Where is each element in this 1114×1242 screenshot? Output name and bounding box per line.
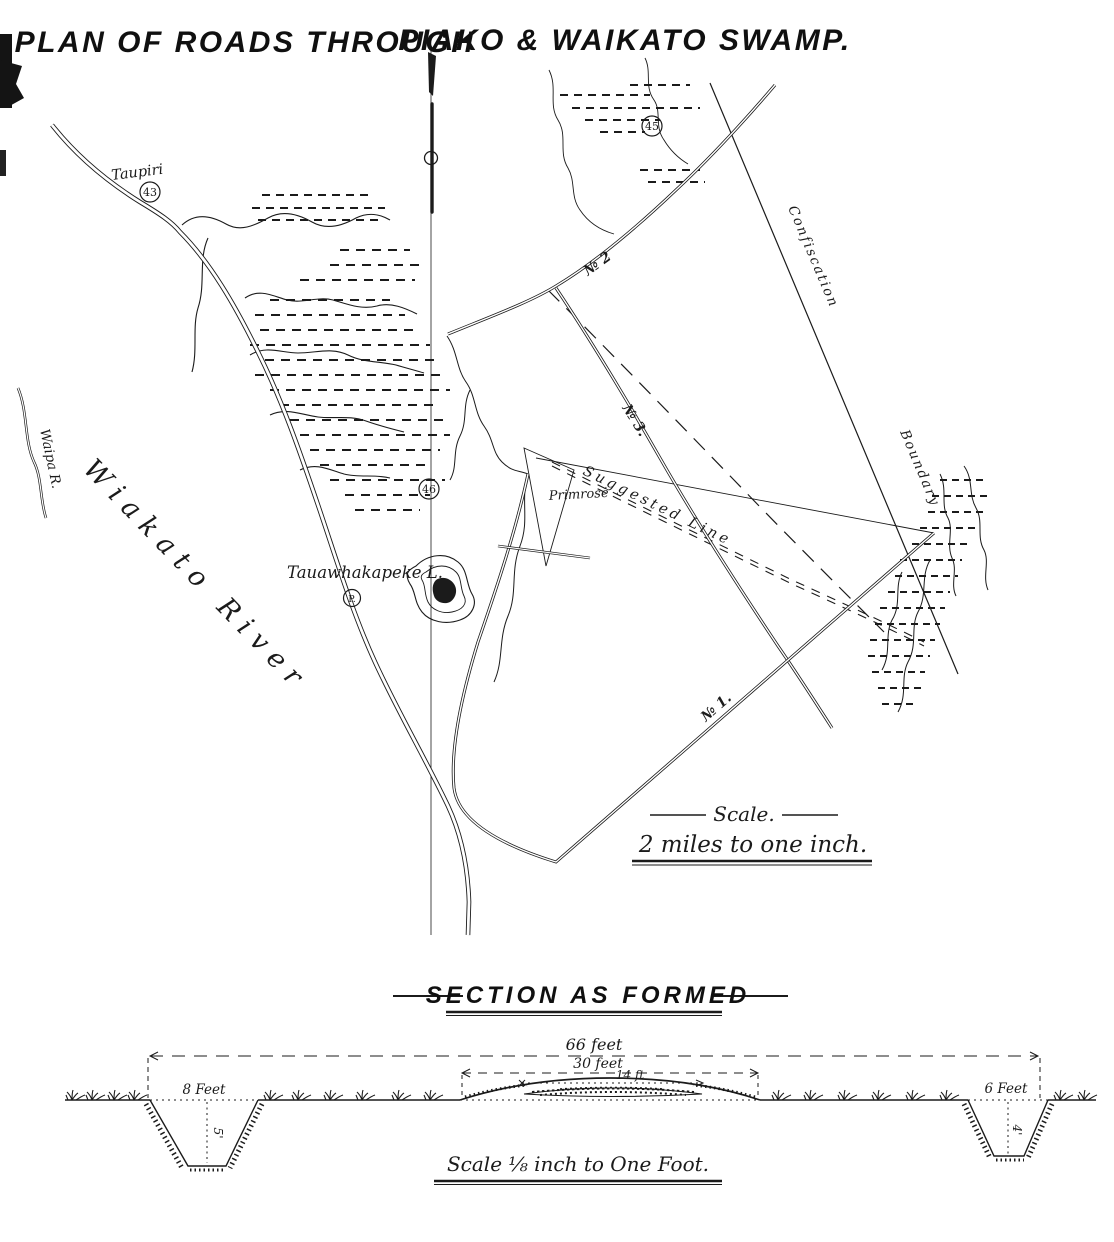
road-no2-label: № 2 <box>580 249 615 280</box>
confiscation-boundary-line <box>710 83 958 674</box>
map-scale-text: 2 miles to one inch. <box>638 832 867 858</box>
confiscation-label: Confiscation <box>784 203 842 310</box>
road-no3-line <box>556 288 832 728</box>
river-label: Wiakato River <box>77 453 315 698</box>
north-streams <box>549 58 688 234</box>
waikato-river <box>52 125 469 935</box>
taupiri-label: Taupiri <box>111 162 165 184</box>
junction-stream <box>447 336 528 682</box>
dim-left-ditch-width: 8 Feet <box>183 1082 226 1098</box>
map-scale-heading: Scale. <box>713 802 774 826</box>
main-swamp-hatching <box>250 250 450 510</box>
map-scale-block: Scale. 2 miles to one inch. <box>632 802 872 865</box>
north-swamp-hatching <box>560 85 705 182</box>
suggested-line-label: Suggested Line <box>580 463 734 549</box>
section-heading-block: SECTION AS FORMED <box>393 982 788 1016</box>
circle-43-label: 43 <box>143 186 157 199</box>
east-swamp-hatching <box>868 480 990 704</box>
dim-total-width: 66 feet <box>566 1035 623 1054</box>
circle-46-label: 46 <box>422 483 436 496</box>
road-no3-label: № 3. <box>618 401 650 440</box>
dim-right-ditch-width: 6 Feet <box>985 1081 1028 1097</box>
dim-metal-width: 14 ft <box>616 1068 645 1082</box>
lake-label: Tauawhakapeke L. <box>287 563 443 582</box>
circle-p: P. <box>344 590 361 607</box>
circle-45-label: 45 <box>645 120 659 133</box>
right-ditch: 6 Feet 4' <box>964 1081 1052 1160</box>
scanned-map-page: { "page": { "paper_color": "#ffffff", "i… <box>0 0 1114 1242</box>
left-ditch: 8 Feet 5' <box>146 1082 262 1170</box>
road-no1-label: № 1. <box>697 690 734 726</box>
dashed-survey-line <box>548 290 884 632</box>
cross-section: 66 feet 30 feet 14 ft <box>65 1035 1097 1185</box>
primrose-label: Primrose <box>547 486 609 504</box>
boundary-label: Boundary <box>896 426 943 509</box>
section-heading: SECTION AS FORMED <box>426 982 750 1009</box>
circle-p-label: P. <box>348 594 356 605</box>
dim-left-ditch-depth: 5' <box>211 1127 226 1138</box>
dim-right-ditch-depth: 4' <box>1010 1124 1024 1136</box>
road-embankment <box>460 1078 760 1100</box>
page-title-right: PIAKO & WAIKATO SWAMP. <box>398 24 851 57</box>
circle-43: 43 <box>140 182 160 202</box>
section-scale-block: Scale ⅛ inch to One Foot. <box>434 1152 722 1185</box>
plan-map-drawing: 43 45 46 P. Taupiri Wiakato River Waipa … <box>0 0 1114 1242</box>
section-scale-note: Scale ⅛ inch to One Foot. <box>447 1152 709 1176</box>
north-arrow-icon <box>425 52 438 212</box>
